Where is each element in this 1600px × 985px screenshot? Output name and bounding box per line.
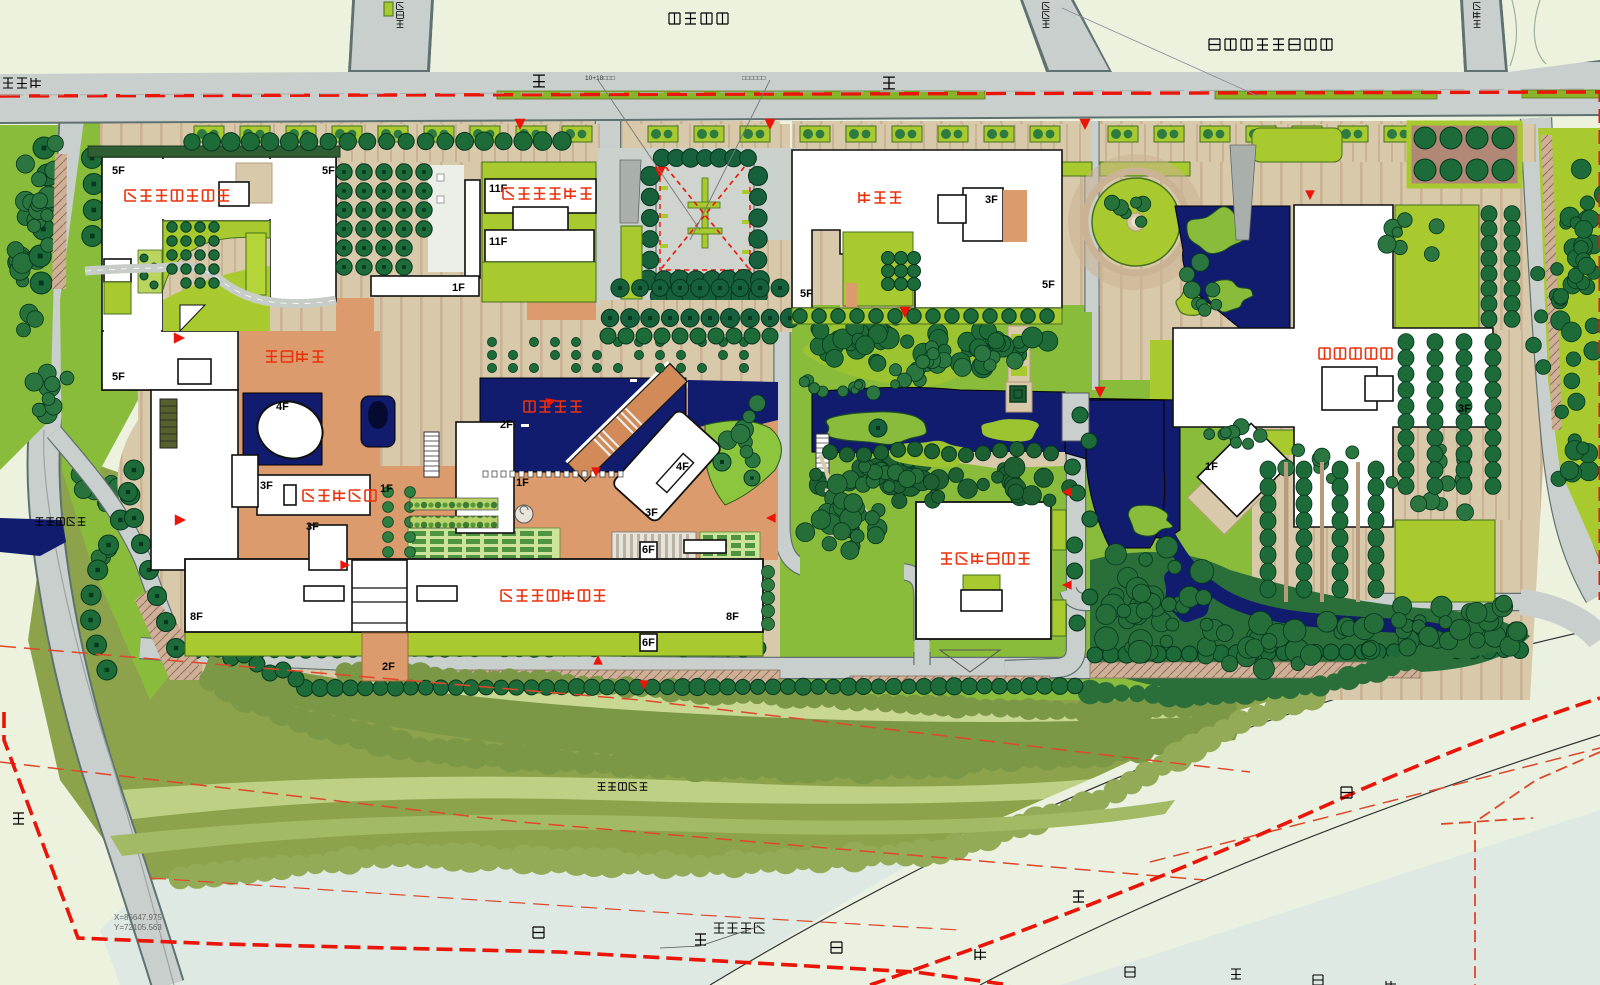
svg-text:6F: 6F bbox=[642, 637, 655, 649]
svg-text:2F: 2F bbox=[382, 661, 395, 673]
svg-text:□□□□□□: □□□□□□ bbox=[742, 75, 766, 82]
svg-text:X=85647.975: X=85647.975 bbox=[114, 913, 162, 922]
svg-text:Y=72105.563: Y=72105.563 bbox=[114, 923, 162, 932]
svg-text:5F: 5F bbox=[112, 165, 125, 177]
svg-text:4F: 4F bbox=[276, 401, 289, 413]
svg-text:1F: 1F bbox=[516, 477, 529, 489]
svg-text:1F: 1F bbox=[1205, 461, 1218, 473]
svg-text:8F: 8F bbox=[190, 611, 203, 623]
svg-text:11F: 11F bbox=[489, 183, 508, 195]
svg-text:4F: 4F bbox=[676, 461, 689, 473]
svg-text:6F: 6F bbox=[642, 544, 655, 556]
svg-text:5F: 5F bbox=[1042, 279, 1055, 291]
svg-text:3F: 3F bbox=[306, 521, 319, 533]
svg-text:8F: 8F bbox=[726, 611, 739, 623]
svg-text:1F: 1F bbox=[452, 282, 465, 294]
svg-text:5F: 5F bbox=[800, 288, 813, 300]
svg-text:2F: 2F bbox=[500, 419, 513, 431]
svg-text:3F: 3F bbox=[260, 480, 273, 492]
svg-text:3F: 3F bbox=[985, 194, 998, 206]
svg-text:5F: 5F bbox=[322, 165, 335, 177]
svg-text:3F: 3F bbox=[1458, 403, 1471, 415]
svg-text:1F: 1F bbox=[380, 483, 393, 495]
svg-text:10+18□□□: 10+18□□□ bbox=[585, 75, 615, 82]
svg-text:5F: 5F bbox=[112, 371, 125, 383]
svg-text:3F: 3F bbox=[645, 507, 658, 519]
svg-text:11F: 11F bbox=[489, 236, 508, 248]
